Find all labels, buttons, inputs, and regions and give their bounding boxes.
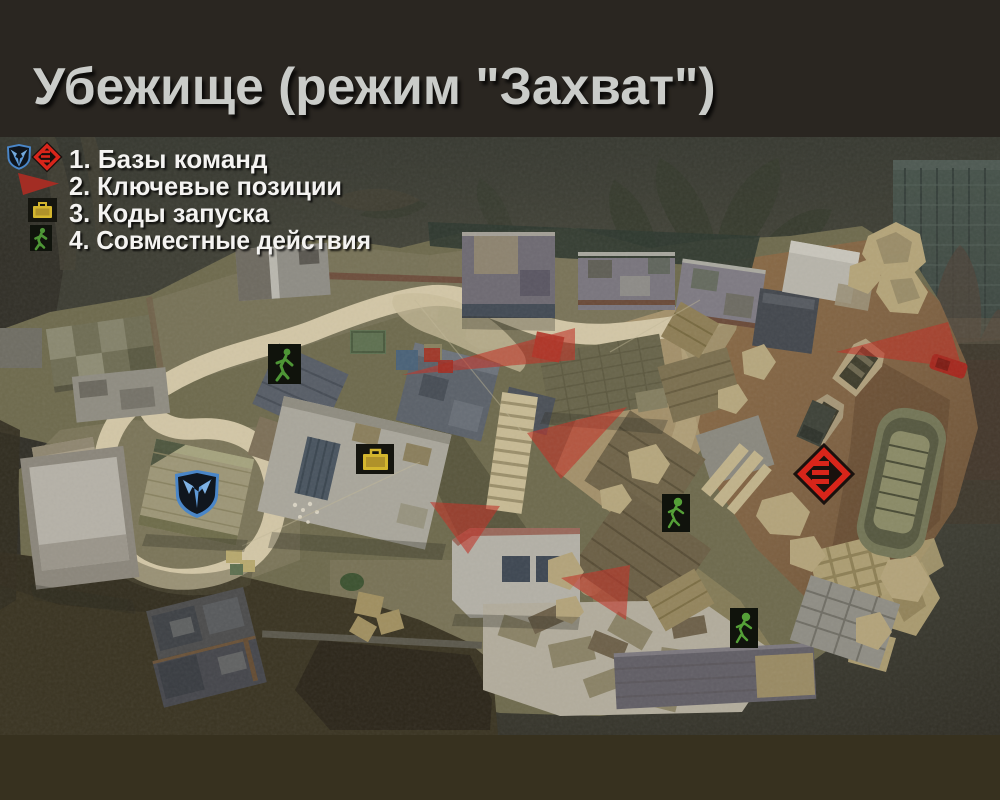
svg-text:3. Коды запуска: 3. Коды запуска — [69, 198, 270, 228]
svg-text:4. Совместные действия: 4. Совместные действия — [69, 225, 371, 255]
svg-text:1. Базы команд: 1. Базы команд — [69, 144, 268, 174]
svg-text:Убежище (режим "Захват"): Убежище (режим "Захват") — [33, 57, 716, 115]
svg-text:2. Ключевые позиции: 2. Ключевые позиции — [69, 171, 342, 201]
